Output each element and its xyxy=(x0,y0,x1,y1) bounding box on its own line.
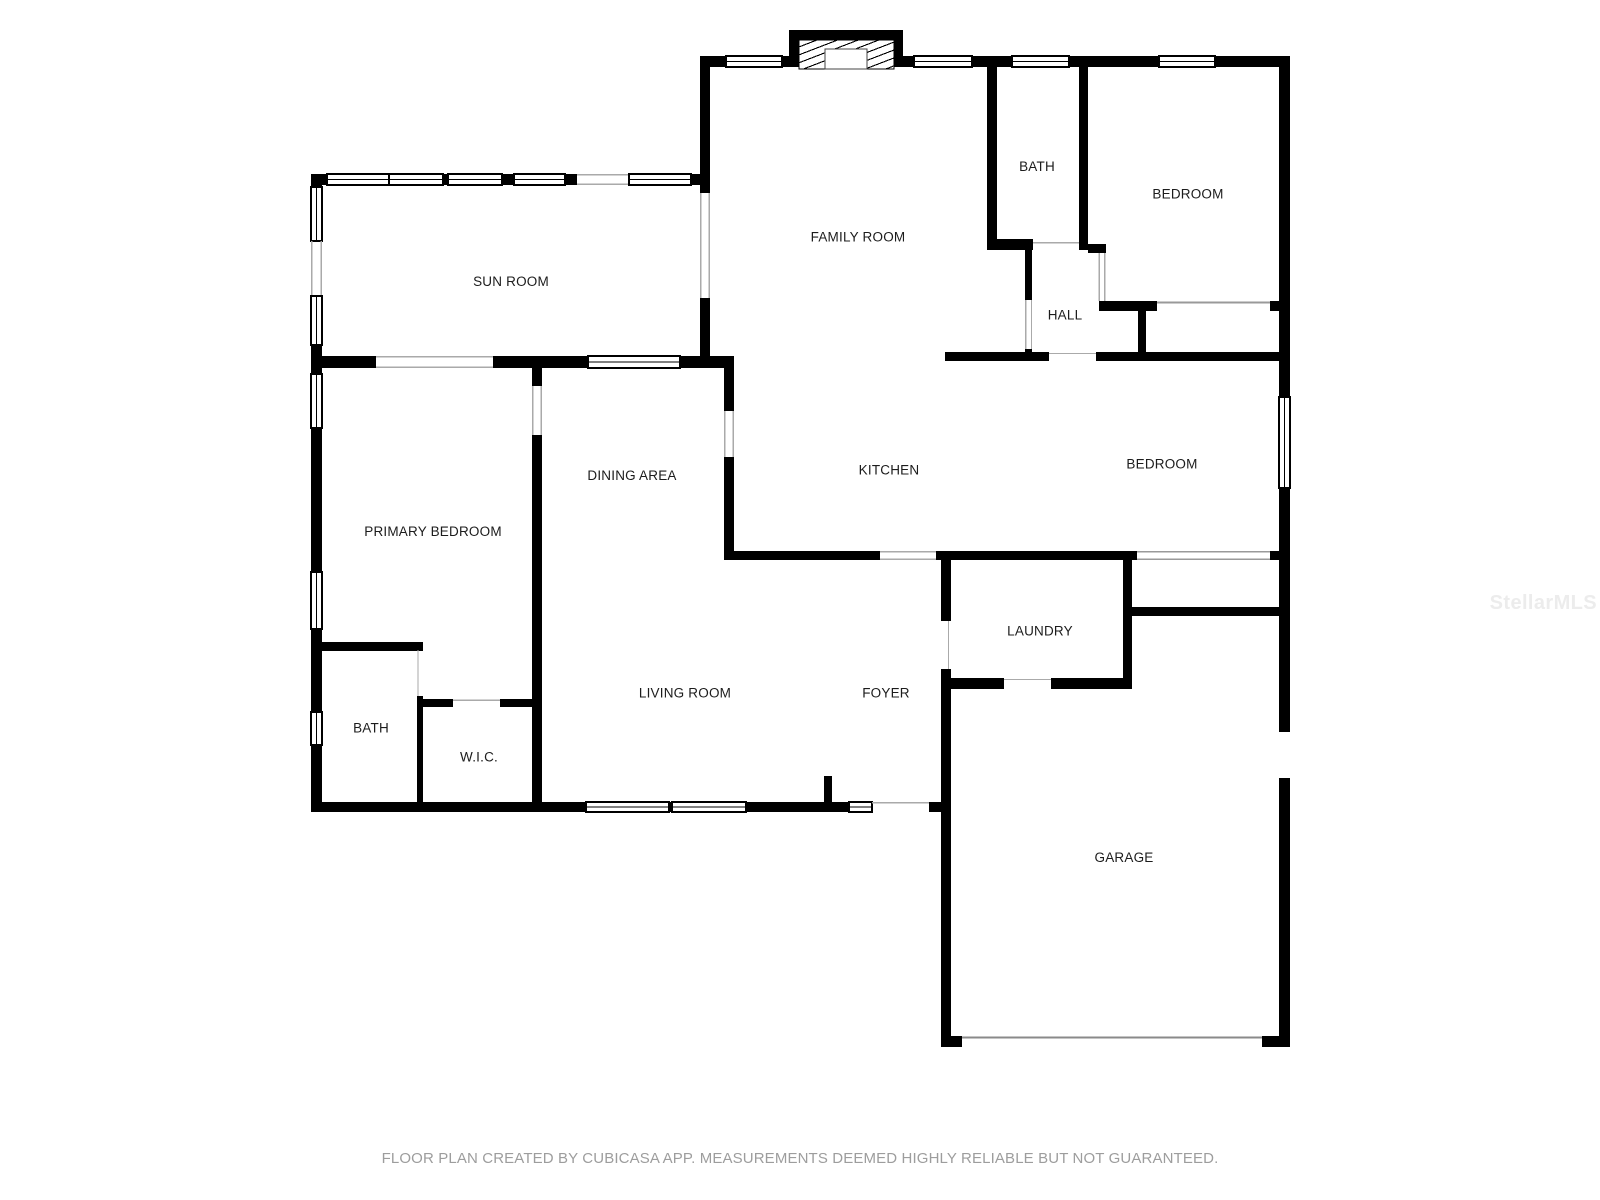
svg-text:StellarMLS: StellarMLS xyxy=(1490,592,1597,614)
svg-text:FLOOR PLAN CREATED BY CUBICASA: FLOOR PLAN CREATED BY CUBICASA APP. MEAS… xyxy=(382,1150,1219,1167)
svg-text:W.I.C.: W.I.C. xyxy=(460,750,498,765)
svg-text:GARAGE: GARAGE xyxy=(1095,850,1154,865)
svg-text:BEDROOM: BEDROOM xyxy=(1126,457,1197,472)
svg-text:BATH: BATH xyxy=(1019,159,1055,174)
svg-text:DINING AREA: DINING AREA xyxy=(587,468,676,483)
svg-text:PRIMARY BEDROOM: PRIMARY BEDROOM xyxy=(364,524,502,539)
svg-text:FOYER: FOYER xyxy=(862,686,910,701)
svg-text:SUN ROOM: SUN ROOM xyxy=(473,274,549,289)
svg-text:LIVING ROOM: LIVING ROOM xyxy=(639,686,731,701)
svg-text:FAMILY ROOM: FAMILY ROOM xyxy=(811,230,906,245)
svg-text:BATH: BATH xyxy=(353,721,389,736)
svg-text:LAUNDRY: LAUNDRY xyxy=(1007,624,1073,639)
svg-text:HALL: HALL xyxy=(1048,308,1083,323)
svg-text:KITCHEN: KITCHEN xyxy=(859,463,920,478)
svg-text:BEDROOM: BEDROOM xyxy=(1152,187,1223,202)
